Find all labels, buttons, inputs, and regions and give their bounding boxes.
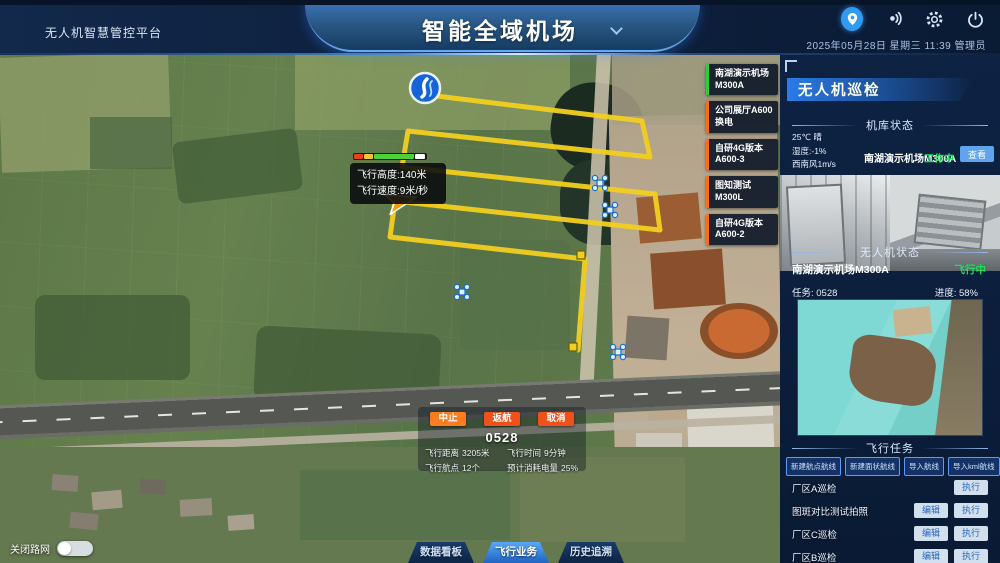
task-id: 0528 <box>418 430 586 445</box>
station-button-label: 自研4G版本A600-3 <box>715 143 763 165</box>
stat-value: 25% <box>561 463 578 473</box>
weather-info: 25℃ 晴 湿度:-1% 西南风1m/s <box>792 131 836 172</box>
import-route-button[interactable]: 导入航线 <box>904 457 944 476</box>
waypoint-marker <box>577 251 585 259</box>
drone-station-name: 南湖演示机场M300A <box>792 262 889 277</box>
task-name: 图斑对比测试拍照 <box>792 504 914 518</box>
datetime-user: 2025年05月28日 星期三 11:39 管理员 <box>806 37 986 52</box>
task-execute-button[interactable]: 执行 <box>954 480 988 495</box>
station-button-a600-2[interactable]: 自研4G版本A600-2 <box>706 214 778 245</box>
flight-stats: 飞行距离3205米 飞行时间9分钟 飞行航点12个 预计消耗电量25% <box>425 447 581 474</box>
station-button-a600-exchange[interactable]: 公司展厅A600换电 <box>706 101 778 132</box>
hangar-marker-icon[interactable] <box>410 73 440 103</box>
road-network-toggle-label: 关闭路网 <box>10 541 50 556</box>
video-feed-detail <box>845 332 938 408</box>
flight-altitude: 飞行高度:140米 <box>357 168 439 184</box>
waypoint-marker <box>569 343 577 351</box>
panel-corner-accent <box>785 60 797 72</box>
new-area-route-button[interactable]: 新建面状航线 <box>845 457 900 476</box>
drone-video-feed[interactable] <box>798 300 982 435</box>
weather-wind: 西南风1m/s <box>792 158 836 172</box>
flight-task-title: 飞行任务 <box>866 440 914 456</box>
task-edit-button[interactable]: 编辑 <box>914 526 948 541</box>
station-button-label: 图知测试M300L <box>715 180 751 202</box>
satellite-map[interactable]: 飞行高度:140米 飞行速度:9米/秒 南湖演示机场M300A 公司展厅A600… <box>0 55 780 563</box>
drone-status-title: 无人机状态 <box>860 244 920 260</box>
stat-label: 预计消耗电量 <box>507 463 558 473</box>
station-button-a600-3[interactable]: 自研4G版本A600-3 <box>706 139 778 170</box>
route-button-row: 新建航点航线 新建面状航线 导入航线 导入kml航线 <box>786 457 994 476</box>
station-button-m300a[interactable]: 南湖演示机场M300A <box>706 64 778 95</box>
bottom-tab-bar: 数据看板 飞行业务 历史追溯 <box>408 542 624 563</box>
view-button[interactable]: 查看 <box>960 146 994 162</box>
task-name: 厂区C巡检 <box>792 527 914 541</box>
panel-title: 无人机巡检 <box>798 79 881 100</box>
stat-label: 飞行时间 <box>507 448 541 458</box>
task-execute-button[interactable]: 执行 <box>954 503 988 518</box>
task-edit-button[interactable]: 编辑 <box>914 503 948 518</box>
weather-temp: 25℃ 晴 <box>792 131 836 145</box>
station-button-label: 自研4G版本A600-2 <box>715 218 763 240</box>
flight-task-divider: 飞行任务 <box>792 440 988 456</box>
abort-button[interactable]: 中止 <box>430 412 466 426</box>
tab-history-trace[interactable]: 历史追溯 <box>558 542 624 563</box>
tab-data-dashboard[interactable]: 数据看板 <box>408 542 474 563</box>
battery-indicator <box>353 153 427 160</box>
task-execute-button[interactable]: 执行 <box>954 526 988 541</box>
flight-control-panel: 中止 返航 取消 0528 飞行距离3205米 飞行时间9分钟 飞行航点12个 … <box>418 407 586 471</box>
task-list: 厂区A巡检 执行 图斑对比测试拍照 编辑 执行 厂区C巡检 编辑 执行 <box>792 476 988 563</box>
inspection-panel: 无人机巡检 机库状态 25℃ 晴 湿度:-1% 西南风1m/s 南湖演示机场M3… <box>780 55 1000 563</box>
drone-marker <box>454 175 625 359</box>
hangar-status-badge: 工作中 <box>924 150 954 165</box>
location-pin-icon[interactable] <box>841 8 863 30</box>
header-icon-bar <box>841 8 986 30</box>
flight-speed: 飞行速度:9米/秒 <box>357 184 439 200</box>
task-row: 图斑对比测试拍照 编辑 执行 <box>792 499 988 522</box>
flight-telemetry-tooltip: 飞行高度:140米 飞行速度:9米/秒 <box>350 163 446 204</box>
app-window: 飞行高度:140米 飞行速度:9米/秒 南湖演示机场M300A 公司展厅A600… <box>0 0 1000 563</box>
flight-path <box>390 95 660 350</box>
station-button-label: 南湖演示机场M300A <box>715 68 769 90</box>
weather-humidity: 湿度:-1% <box>792 145 836 159</box>
stat-value: 9分钟 <box>544 448 566 458</box>
signal-broadcast-icon[interactable] <box>882 8 904 30</box>
new-waypoint-route-button[interactable]: 新建航点航线 <box>786 457 841 476</box>
task-name: 厂区A巡检 <box>792 481 954 495</box>
drone-progress-label: 进度: 58% <box>935 285 978 299</box>
stat-value: 12个 <box>462 463 480 473</box>
stat-label: 飞行距离 <box>425 448 459 458</box>
flight-path-overlay <box>0 55 780 563</box>
task-row: 厂区C巡检 编辑 执行 <box>792 522 988 545</box>
station-button-label: 公司展厅A600换电 <box>715 105 773 127</box>
gear-icon[interactable] <box>923 8 945 30</box>
stat-value: 3205米 <box>462 448 489 458</box>
station-button-m300l[interactable]: 图知测试M300L <box>706 176 778 207</box>
cancel-button[interactable]: 取消 <box>538 412 574 426</box>
panel-title-band: 无人机巡检 <box>787 78 972 101</box>
road-network-toggle[interactable] <box>57 541 93 556</box>
task-row: 厂区B巡检 编辑 执行 <box>792 545 988 563</box>
stat-label: 飞行航点 <box>425 463 459 473</box>
road-network-toggle-group: 关闭路网 <box>10 541 93 556</box>
task-edit-button[interactable]: 编辑 <box>914 549 948 563</box>
header-glow-line <box>0 53 1000 55</box>
drone-task-label: 任务: 0528 <box>792 285 837 299</box>
drone-status-badge: 飞行中 <box>955 262 987 277</box>
power-icon[interactable] <box>964 8 986 30</box>
return-home-button[interactable]: 返航 <box>484 412 520 426</box>
toggle-knob <box>58 542 71 555</box>
hangar-status-title: 机库状态 <box>866 117 914 133</box>
tab-flight-business[interactable]: 飞行业务 <box>483 542 549 563</box>
task-execute-button[interactable]: 执行 <box>954 549 988 563</box>
top-header: 无人机智慧管控平台 智能全域机场 <box>0 0 1000 55</box>
drone-status-divider: 无人机状态 <box>792 244 988 260</box>
import-kml-route-button[interactable]: 导入kml航线 <box>948 457 1000 476</box>
station-button-list: 南湖演示机场M300A 公司展厅A600换电 自研4G版本A600-3 图知测试… <box>706 64 778 251</box>
header-top-strip <box>0 0 1000 5</box>
task-name: 厂区B巡检 <box>792 550 914 563</box>
video-feed-detail <box>892 306 931 337</box>
task-row: 厂区A巡检 执行 <box>792 476 988 499</box>
